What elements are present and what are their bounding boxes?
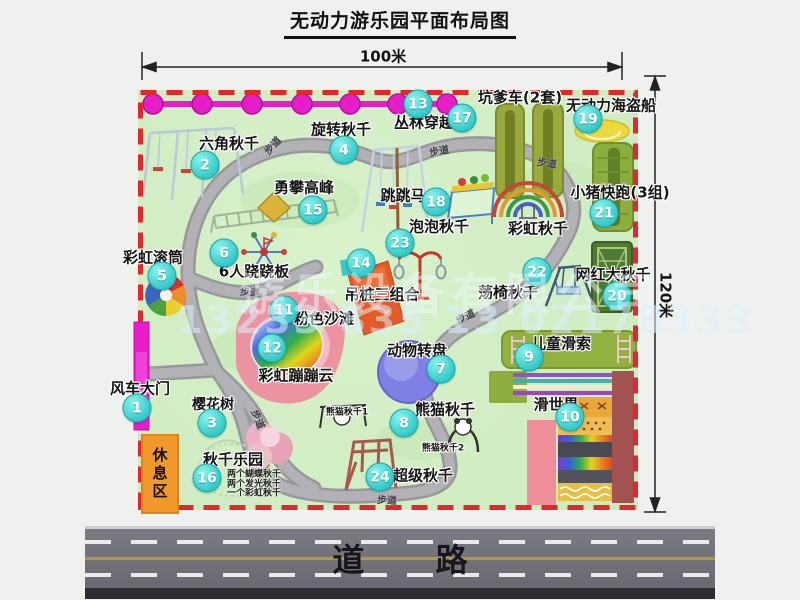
label-panda-swing: 熊猫秋千: [415, 399, 475, 420]
badge-18: 18: [422, 188, 451, 217]
badge-19: 19: [574, 105, 603, 134]
label-rainbow-swing: 彩虹秋千: [508, 218, 568, 239]
badge-24: 24: [366, 463, 395, 492]
badge-8: 8: [390, 409, 419, 438]
badge-21: 21: [590, 199, 619, 228]
width-dimension-label: 100米: [360, 46, 406, 67]
badge-6: 6: [210, 239, 239, 268]
badge-13: 13: [404, 90, 433, 119]
swing-park-note-3: 一个彩虹秋千: [227, 486, 281, 499]
badge-7: 7: [427, 355, 456, 384]
park-layout-map: 无动力游乐园平面布局图: [0, 0, 800, 600]
badge-23: 23: [386, 229, 415, 258]
badge-20: 20: [603, 282, 632, 311]
walkway-label: 步道: [536, 153, 558, 171]
label-panda-swing-1: 熊猫秋千1: [326, 405, 368, 418]
badge-3: 3: [198, 409, 227, 438]
label-hanging-piles: 吊桩三组合: [344, 284, 419, 305]
label-jumping-horse: 跳跳马: [380, 185, 425, 206]
badge-15: 15: [299, 196, 328, 225]
page-title-text: 无动力游乐园平面布局图: [284, 6, 516, 39]
slide-world-icon: [489, 371, 634, 505]
badge-9: 9: [515, 343, 544, 372]
label-rainbow-cloud: 彩虹蹦蹦云: [258, 365, 333, 386]
walkway-label: 步道: [240, 283, 261, 299]
page-title: 无动力游乐园平面布局图: [0, 6, 800, 39]
label-climbing-peak: 勇攀高峰: [274, 177, 334, 198]
badge-1: 1: [123, 394, 152, 423]
label-pit-cart: 坑爹车(2套): [478, 87, 562, 108]
badge-2: 2: [191, 151, 220, 180]
badge-10: 10: [556, 403, 585, 432]
road-lower-band: [85, 588, 715, 599]
badge-5: 5: [148, 262, 177, 291]
label-panda-swing-2: 熊猫秋千2: [422, 441, 464, 454]
walkway-label: 步道: [377, 491, 398, 507]
badge-14: 14: [347, 249, 376, 278]
badge-17: 17: [448, 104, 477, 133]
label-piggy-run: 小猪快跑(3组): [570, 182, 669, 203]
rest-area-label: 休息区: [150, 447, 171, 501]
road-label: 道 路: [85, 535, 715, 581]
label-super-swing: 超级秋千: [393, 465, 453, 486]
height-dimension-label: 120米: [656, 272, 677, 318]
badge-11: 11: [270, 296, 299, 325]
badge-22: 22: [523, 258, 552, 287]
label-pink-beach: 粉色沙滩: [294, 308, 354, 329]
label-bubble-swing: 泡泡秋千: [409, 216, 469, 237]
badge-16: 16: [193, 464, 222, 493]
badge-12: 12: [258, 334, 287, 363]
rest-area-block: 休息区: [141, 434, 179, 514]
road: 道 路: [85, 526, 715, 594]
badge-4: 4: [330, 136, 359, 165]
